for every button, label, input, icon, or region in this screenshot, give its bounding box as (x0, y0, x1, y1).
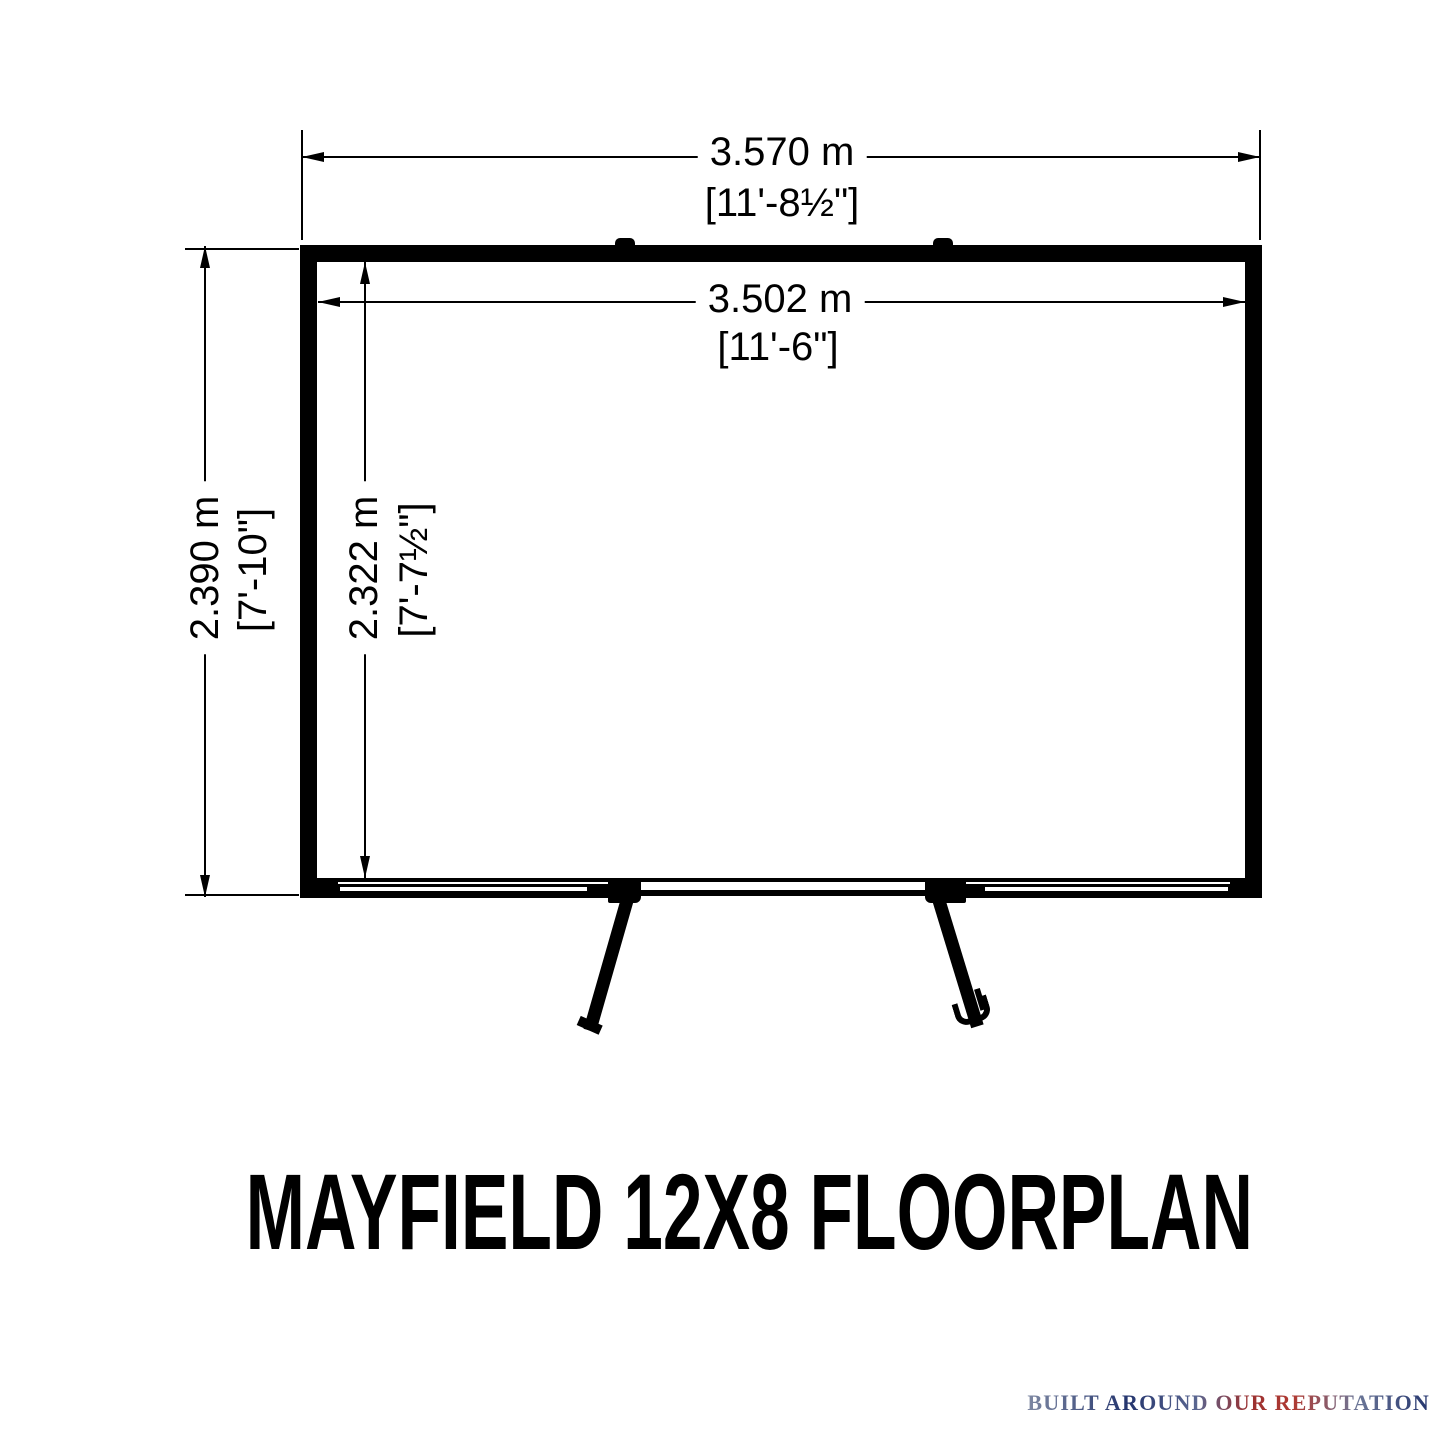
dim-arrow-down-icon (200, 875, 210, 897)
dim-arrow-up-icon (360, 262, 370, 284)
wall-panel-stripe-left (340, 887, 587, 891)
outer-depth-metric-label: 2.390 m (183, 482, 227, 655)
shed-wall-right (1245, 245, 1262, 898)
shed-wall-bottom-inner-line (317, 878, 1248, 882)
inner-depth-metric-label: 2.322 m (342, 482, 386, 655)
extension-line-outer-width-left (301, 130, 303, 240)
inner-depth-imperial-label: [7'-7½"] (392, 488, 436, 651)
shire-logo: SHIRE (1033, 1207, 1415, 1232)
roof-marker-left-icon (615, 238, 635, 246)
door-foot-left (577, 1016, 603, 1035)
extension-line-outer-width-right (1259, 130, 1261, 240)
shed-wall-left (300, 245, 317, 898)
outer-depth-imperial-label: [7'-10"] (231, 494, 275, 646)
dim-arrow-down-icon (360, 856, 370, 878)
door-stay-hook-right (952, 994, 993, 1027)
shed-wall-top (300, 245, 1262, 262)
dim-arrow-left-icon (302, 152, 324, 162)
logo-tagline: BUILT AROUND OUR REPUTATION (1027, 1390, 1430, 1416)
wall-panel-stripe-right (985, 887, 1228, 891)
outer-width-imperial-label: [11'-8½"] (693, 181, 872, 225)
dim-arrow-left-icon (318, 297, 340, 307)
shed-wall-bottom-right-cap (1230, 878, 1262, 898)
roof-marker-right-icon (933, 238, 953, 246)
door-threshold (632, 890, 932, 896)
dim-arrow-right-icon (1223, 297, 1245, 307)
shed-wall-bottom-left-cap (300, 878, 338, 898)
dim-arrow-right-icon (1238, 152, 1260, 162)
door-leaf-right (931, 894, 983, 1028)
door-leaf-left (584, 894, 635, 1032)
inner-width-metric-label: 3.502 m (696, 277, 865, 321)
inner-width-imperial-label: [11'-6"] (705, 325, 850, 369)
floorplan-canvas: 3.570 m [11'-8½"] 3.502 m [11'-6"] 2.390… (0, 0, 1445, 1445)
dim-arrow-up-icon (200, 246, 210, 268)
outer-width-metric-label: 3.570 m (698, 130, 867, 174)
